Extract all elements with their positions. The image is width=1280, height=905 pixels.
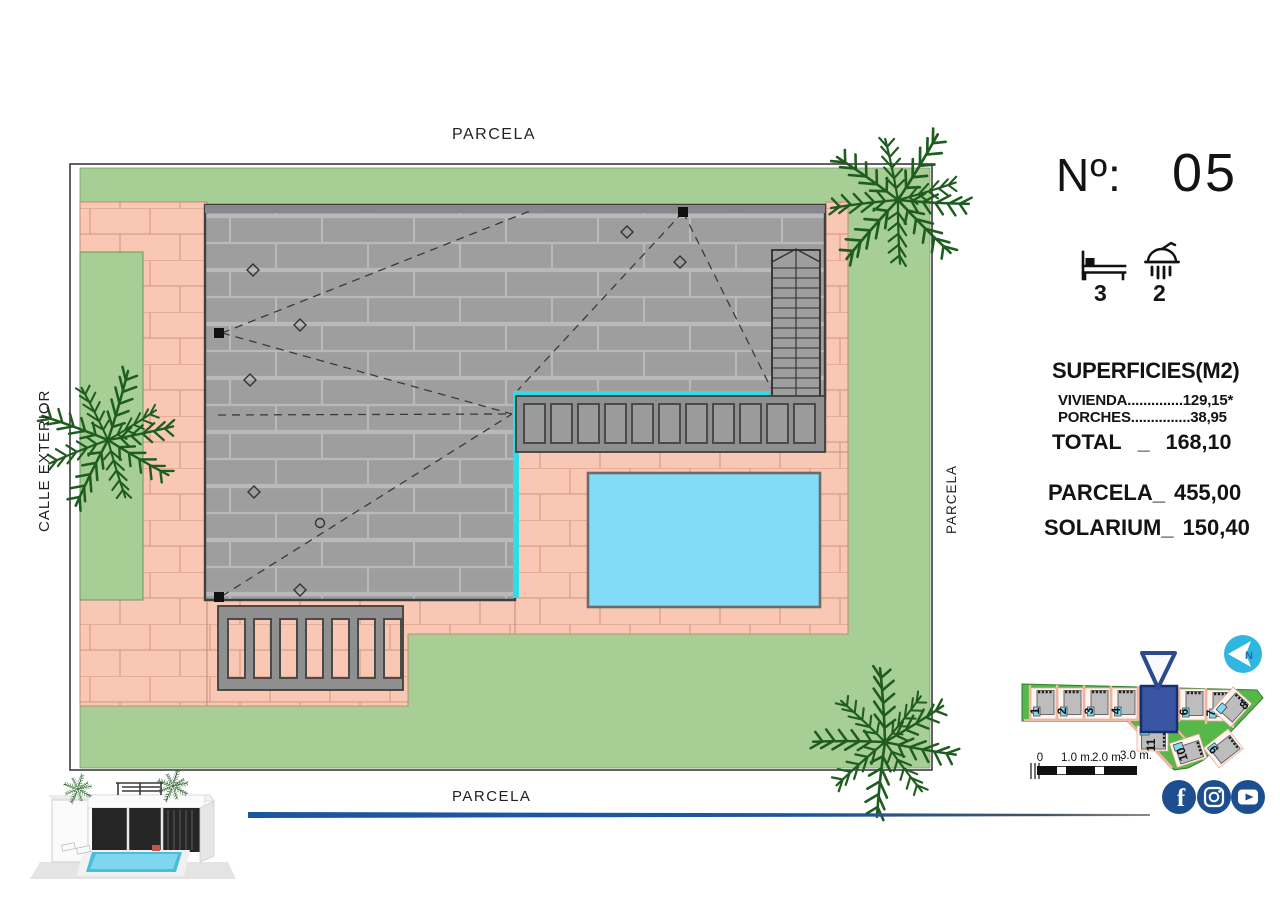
scale-tick-label: 1.0 m. <box>1061 752 1093 764</box>
bed-icon <box>1083 252 1125 279</box>
plot-number: 2 <box>1055 707 1069 714</box>
location-marker-icon <box>1142 653 1175 688</box>
plan-sheet: 1 2 3 4 6 7 8 11 10 9 N 0 1.0 m. 2.0 m. … <box>0 0 1280 905</box>
surface-row-porches: PORCHES...............38,95 <box>1058 409 1227 426</box>
youtube-icon[interactable] <box>1231 780 1265 814</box>
plot-number-label: Nº: <box>1056 148 1122 202</box>
label-parcela-bottom: PARCELA <box>452 788 531 805</box>
solarium-value: 150,40 <box>1183 515 1250 541</box>
plot-number: 1 <box>1028 707 1042 714</box>
facebook-icon[interactable]: f <box>1162 780 1196 814</box>
roof-edge-band <box>205 205 825 213</box>
highlighted-plot <box>1141 686 1177 732</box>
staircase <box>772 249 820 398</box>
plot-number-value: 05 <box>1172 142 1238 204</box>
instagram-icon[interactable] <box>1197 780 1231 814</box>
bedroom-count: 3 <box>1094 280 1107 307</box>
plot-number: 6 <box>1177 708 1191 715</box>
total-value: 168,10 <box>1166 430 1232 455</box>
scale-tick-label: 3.0 m. <box>1120 750 1152 762</box>
parcela-line: PARCELA_ 455,00 <box>1048 480 1241 506</box>
solarium-line: SOLARIUM_ 150,40 <box>1044 515 1250 541</box>
north-arrow-icon: N <box>1224 635 1262 673</box>
divider-line <box>248 812 1150 818</box>
parcela-label: PARCELA_ <box>1048 480 1165 506</box>
plot-number: 3 <box>1082 707 1096 714</box>
pool <box>588 473 820 607</box>
pergola-bottom <box>218 606 403 690</box>
total-line: TOTAL _ 168,10 <box>1052 430 1231 455</box>
scale-tick-label: 0 <box>1037 752 1043 764</box>
total-separator: _ <box>1138 430 1150 455</box>
plot-number: 7 <box>1204 709 1218 716</box>
label-calle-exterior: CALLE EXTERIOR <box>36 392 53 532</box>
scale-bar: 0 1.0 m. 2.0 m. 3.0 m. <box>1031 750 1152 779</box>
plot-number: 4 <box>1109 707 1123 714</box>
surfaces-title: SUPERFICIES(M2) <box>1052 358 1239 384</box>
solarium-label: SOLARIUM_ <box>1044 515 1174 541</box>
surface-row-vivienda: VIVIENDA..............129,15* <box>1058 392 1233 409</box>
main-site-plan <box>38 105 986 835</box>
social-links: f <box>1162 780 1265 814</box>
villa-render <box>30 769 236 879</box>
svg-text:f: f <box>1177 785 1186 812</box>
label-parcela-top: PARCELA <box>452 126 536 144</box>
bathroom-count: 2 <box>1153 280 1166 307</box>
total-label: TOTAL <box>1052 430 1122 455</box>
shower-icon <box>1146 243 1179 278</box>
parcela-value: 455,00 <box>1174 480 1241 506</box>
label-parcela-right: PARCELA <box>944 450 959 534</box>
pergola-top <box>516 396 825 452</box>
svg-text:N: N <box>1245 650 1253 662</box>
